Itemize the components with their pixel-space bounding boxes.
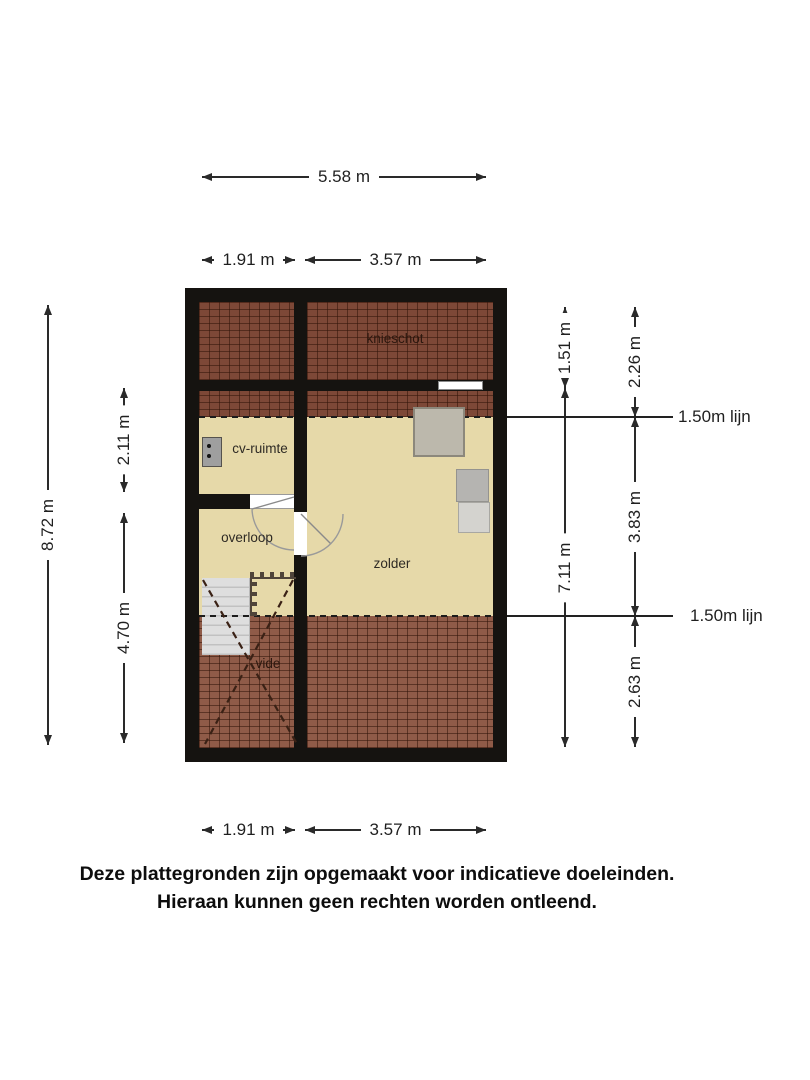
door-leaf-zolder [301, 514, 331, 544]
dim-bottom-left: 1.91 m [202, 829, 295, 831]
plan-symbols-overlay [199, 302, 493, 748]
dim-top-total: 5.58 m [202, 176, 486, 178]
room-label-cv-ruimte: cv-ruimte [210, 441, 310, 456]
dim-top-right-label: 3.57 m [361, 250, 431, 270]
dim-right-outer-middle: 3.83 m [634, 417, 636, 616]
dim-right-inner-bottom: 7.11 m [564, 388, 566, 747]
dim-bottom-right: 3.57 m [305, 829, 486, 831]
dim-left-lower-label: 4.70 m [114, 593, 134, 663]
dim-right-outer-middle-label: 3.83 m [625, 482, 645, 552]
dim-left-lower: 4.70 m [123, 513, 125, 743]
dim-top-left-label: 1.91 m [214, 250, 284, 270]
refline-lower-label: 1.50m lijn [690, 606, 763, 626]
dim-right-inner-top: 1.51 m [564, 307, 566, 388]
door-leaf-overloop [252, 497, 294, 509]
floor-plan-interior: knieschot cv-ruimte overloop zolder vide [199, 302, 493, 748]
disclaimer-line-1: Deze plattegronden zijn opgemaakt voor i… [0, 860, 754, 888]
room-label-knieschot: knieschot [329, 331, 461, 346]
refline-upper [507, 416, 673, 418]
disclaimer-line-2: Hieraan kunnen geen rechten worden ontle… [0, 888, 754, 916]
dim-left-upper: 2.11 m [123, 388, 125, 492]
dim-right-outer-top-label: 2.26 m [625, 327, 645, 397]
dim-right-outer-top: 2.26 m [634, 307, 636, 417]
room-label-zolder: zolder [332, 556, 452, 571]
dim-top-total-label: 5.58 m [309, 167, 379, 187]
dim-bottom-right-label: 3.57 m [361, 820, 431, 840]
room-label-vide: vide [238, 656, 298, 671]
dim-right-outer-bottom-label: 2.63 m [625, 647, 645, 717]
room-label-overloop: overloop [199, 530, 295, 545]
dim-right-inner-top-label: 1.51 m [555, 313, 575, 383]
dim-left-upper-label: 2.11 m [114, 406, 134, 475]
dim-left-total-label: 8.72 m [38, 490, 58, 560]
dim-top-right: 3.57 m [305, 259, 486, 261]
refline-lower [507, 615, 673, 617]
dim-left-total: 8.72 m [47, 305, 49, 745]
dim-top-left: 1.91 m [202, 259, 295, 261]
dim-right-outer-bottom: 2.63 m [634, 616, 636, 747]
dim-bottom-left-label: 1.91 m [214, 820, 284, 840]
refline-upper-label: 1.50m lijn [678, 407, 751, 427]
floor-plan: knieschot cv-ruimte overloop zolder vide [185, 288, 507, 762]
disclaimer: Deze plattegronden zijn opgemaakt voor i… [0, 860, 754, 916]
dim-right-inner-bottom-label: 7.11 m [555, 533, 575, 602]
